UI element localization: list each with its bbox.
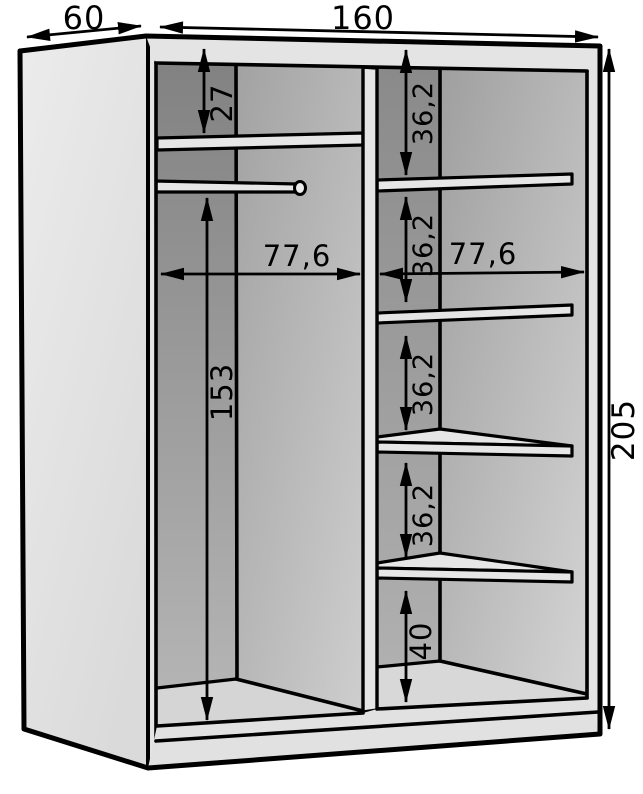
dimension-height: 205 <box>606 49 642 729</box>
dimension-bottom-gap-label: 40 <box>404 622 438 661</box>
dimension-depth: 60 <box>27 0 141 37</box>
dimension-shelf-gap-3-label: 36,2 <box>408 352 439 416</box>
shelf-4 <box>377 568 572 582</box>
cabinet-body <box>20 36 600 768</box>
dimension-shelf-gap-1-label: 36,2 <box>408 81 439 145</box>
wardrobe-dimension-diagram: 60 160 205 27 153 77,6 77,6 36,2 <box>0 0 643 794</box>
dimension-shelf-gap-4-label: 36,2 <box>408 483 439 547</box>
dimension-shelf-gap-2-label: 36,2 <box>408 213 439 277</box>
hanging-rail <box>155 181 298 192</box>
dimension-height-label: 205 <box>606 399 642 461</box>
dimension-width: 160 <box>160 0 598 37</box>
dimension-hanging-height-label: 153 <box>205 363 239 421</box>
dimension-right-width-label: 77,6 <box>449 237 518 271</box>
center-divider <box>363 67 377 712</box>
diagram-canvas: 60 160 205 27 153 77,6 77,6 36,2 <box>0 0 643 794</box>
dimension-depth-label: 60 <box>63 0 106 37</box>
shelf-3 <box>377 442 572 456</box>
left-back-wall <box>236 66 363 712</box>
left-side-panel-face <box>20 36 148 768</box>
dimension-width-label: 160 <box>331 0 395 37</box>
right-back-wall <box>440 70 587 694</box>
hanging-rail-end-cap <box>295 182 306 195</box>
left-compartment <box>155 64 363 726</box>
dimension-left-width-label: 77,6 <box>263 239 332 273</box>
dimension-top-shelf-drop-label: 27 <box>205 84 239 123</box>
